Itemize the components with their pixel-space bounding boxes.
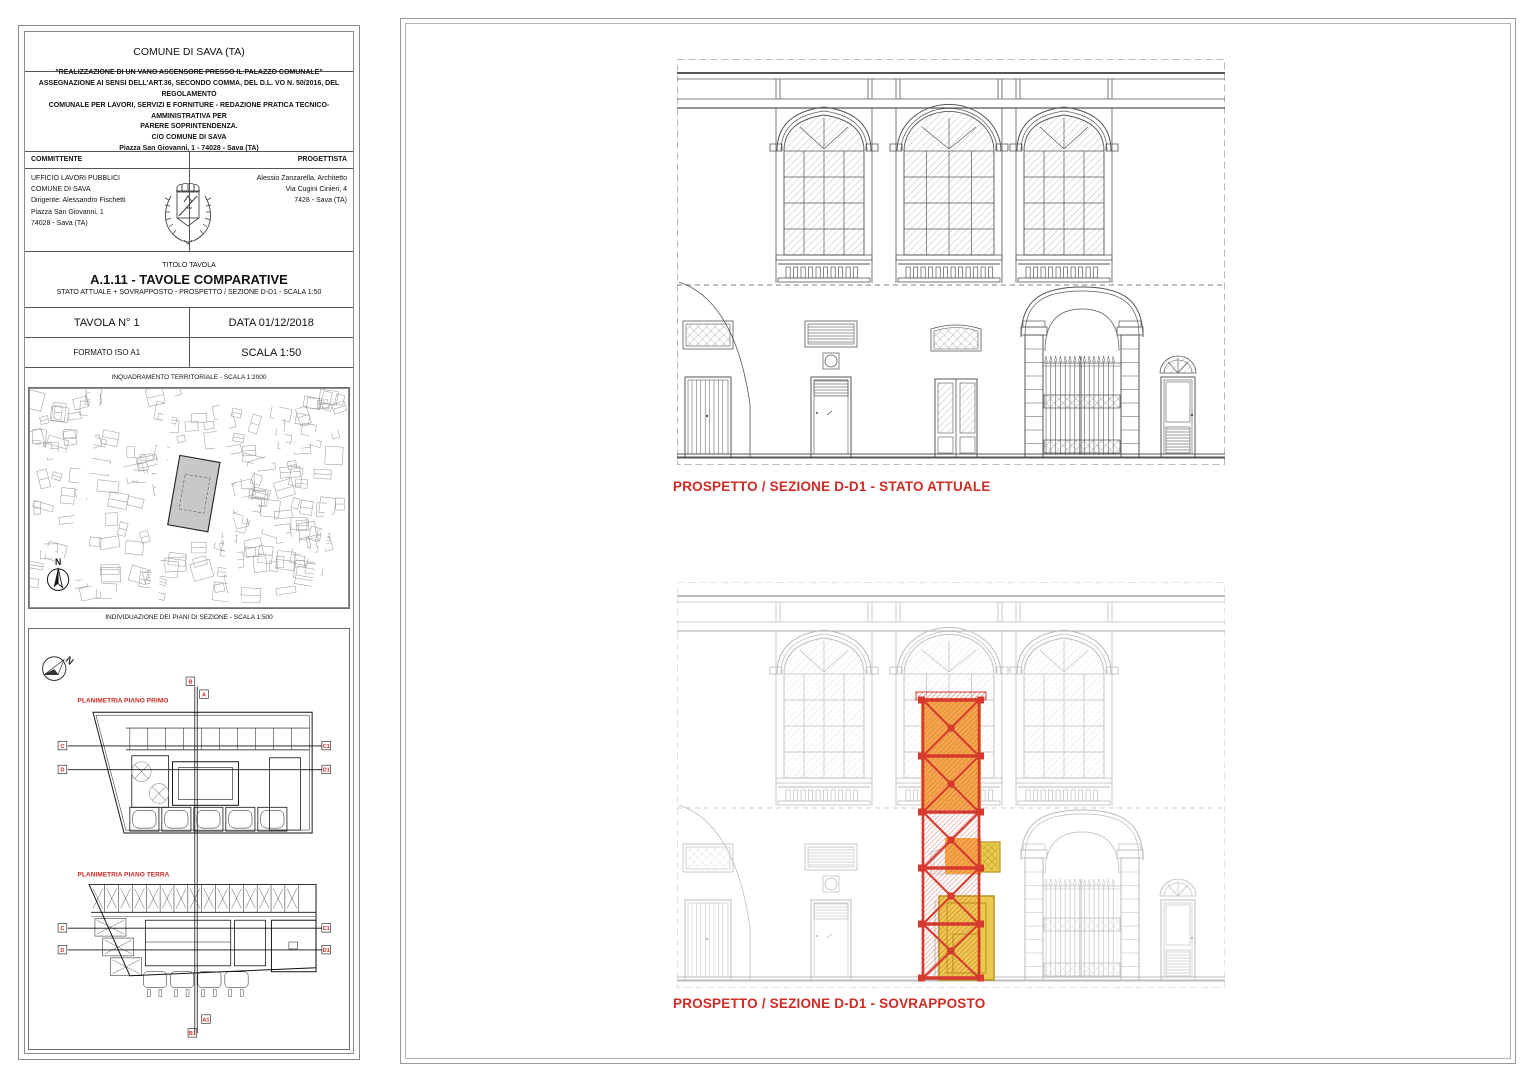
svg-text:PLANIMETRIA PIANO TERRA: PLANIMETRIA PIANO TERRA: [77, 872, 169, 879]
section-plans: NPLANIMETRIA PIANO PRIMOPLANIMETRIA PIAN…: [28, 628, 350, 1050]
svg-text:A: A: [202, 692, 206, 698]
project-description: "REALIZZAZIONE DI UN VANO ASCENSORE PRES…: [25, 72, 353, 152]
tavola-date: DATA 01/12/2018: [190, 308, 354, 337]
svg-text:A1: A1: [202, 1017, 209, 1023]
territorial-map: N: [28, 387, 350, 609]
section-plans-svg: NPLANIMETRIA PIANO PRIMOPLANIMETRIA PIAN…: [29, 629, 349, 1049]
svg-text:B: B: [188, 679, 192, 685]
elevation-top-caption: PROSPETTO / SEZIONE D-D1 - STATO ATTUALE: [673, 479, 991, 494]
svg-text:PLANIMETRIA PIANO PRIMO: PLANIMETRIA PIANO PRIMO: [77, 697, 168, 704]
progettista-header: PROGETTISTA: [189, 152, 353, 168]
svg-text:N: N: [63, 655, 75, 668]
tavola-data-row: TAVOLA N° 1 DATA 01/12/2018: [25, 308, 353, 338]
plans-caption: INDIVIDUAZIONE DEI PIANI DI SEZIONE - SC…: [25, 609, 353, 626]
title-block-sheet: COMUNE DI SAVA (TA) "REALIZZAZIONE DI UN…: [18, 25, 360, 1060]
svg-text:N: N: [55, 557, 61, 567]
svg-text:C1: C1: [323, 744, 330, 750]
scala: SCALA 1:50: [190, 338, 354, 367]
territorial-map-svg: N: [29, 388, 349, 608]
svg-text:D1: D1: [323, 948, 330, 954]
sheet-title: A.1.11 - TAVOLE COMPARATIVE: [90, 271, 288, 289]
project-line: "REALIZZAZIONE DI UN VANO ASCENSORE PRES…: [55, 68, 322, 79]
project-line: PARERE SOPRINTENDENZA.: [140, 122, 238, 133]
svg-text:C: C: [60, 926, 64, 932]
svg-text:B1: B1: [189, 1031, 196, 1037]
formato: FORMATO ISO A1: [25, 338, 190, 367]
elevation-sovrapposto-drawing: [677, 582, 1225, 990]
elevation-bottom-caption: PROSPETTO / SEZIONE D-D1 - SOVRAPPOSTO: [673, 996, 985, 1011]
svg-text:C1: C1: [323, 926, 330, 932]
tavola-number: TAVOLA N° 1: [25, 308, 190, 337]
coat-of-arms-icon: [159, 174, 217, 246]
svg-text:D1: D1: [323, 768, 330, 774]
elevation-sheet: PROSPETTO / SEZIONE D-D1 - STATO ATTUALE…: [400, 18, 1516, 1064]
titolo-tavola-block: TITOLO TAVOLA A.1.11 - TAVOLE COMPARATIV…: [25, 252, 353, 308]
sheet-subtitle: STATO ATTUALE + SOVRAPPOSTO - PROSPETTO …: [57, 288, 322, 297]
svg-text:D: D: [60, 948, 64, 954]
project-line: ASSEGNAZIONE AI SENSI DELL'ART.36, SECON…: [33, 79, 345, 101]
elevation-stato-attuale-drawing: [677, 59, 1225, 467]
formato-scala-row: FORMATO ISO A1 SCALA 1:50: [25, 338, 353, 368]
parties-block: COMMITTENTE PROGETTISTA UFFICIO LAVORI P…: [25, 152, 353, 252]
project-line: COMUNALE PER LAVORI, SERVIZI E FORNITURE…: [33, 101, 345, 123]
titolo-kicker: TITOLO TAVOLA: [162, 261, 216, 270]
title-block-inner-frame: COMUNE DI SAVA (TA) "REALIZZAZIONE DI UN…: [24, 31, 354, 1054]
svg-text:D: D: [60, 768, 64, 774]
committente-header: COMMITTENTE: [25, 152, 189, 168]
drawing-sheet-page: COMUNE DI SAVA (TA) "REALIZZAZIONE DI UN…: [0, 0, 1529, 1080]
map-caption: INQUADRAMENTO TERRITORIALE - SCALA 1:200…: [25, 368, 353, 387]
project-line: C/O COMUNE DI SAVA: [152, 133, 227, 144]
svg-text:C: C: [60, 744, 64, 750]
comune-header: COMUNE DI SAVA (TA): [25, 32, 353, 72]
